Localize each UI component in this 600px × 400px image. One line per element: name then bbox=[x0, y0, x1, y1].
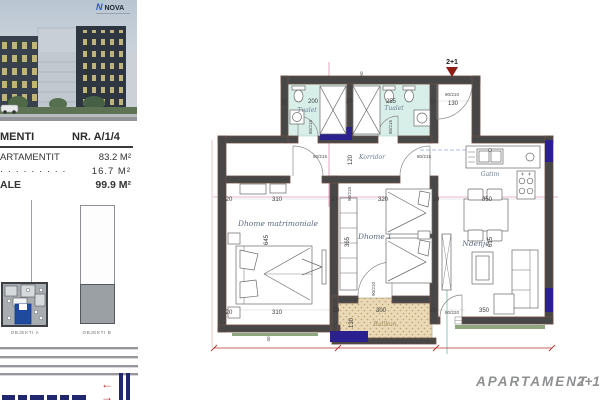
dim-label: 120 bbox=[348, 154, 354, 165]
floor-plan: 2+1 Tualet Tualet Korridor Dhome matrimo… bbox=[0, 0, 600, 400]
dim-label: 20 bbox=[333, 308, 340, 314]
dim-label: 310 bbox=[272, 197, 283, 203]
dim-label: 130 bbox=[349, 317, 355, 328]
dim-label: 80/215 bbox=[313, 154, 327, 159]
dim-label: 90/210 bbox=[371, 282, 376, 296]
room-label-korridor: Korridor bbox=[358, 154, 386, 161]
room-label-tualet-2: Tualet bbox=[384, 105, 404, 112]
dim-label: 615 bbox=[488, 236, 494, 247]
dim-label: 310 bbox=[272, 310, 283, 316]
dim-label: 80/215 bbox=[308, 120, 313, 134]
dim-label: 20 bbox=[226, 197, 233, 203]
dim-label: 365 bbox=[345, 236, 351, 247]
dim-label: 645 bbox=[264, 234, 270, 245]
room-label-gatim: Gatim bbox=[481, 171, 500, 178]
master-bed bbox=[228, 184, 326, 318]
dim-label: 20 bbox=[226, 310, 233, 316]
entry-marker-icon bbox=[446, 67, 458, 77]
room-label-master: Dhome matrimoniale bbox=[237, 219, 319, 228]
dim-label: 20 bbox=[282, 98, 288, 105]
dim-label: 200 bbox=[308, 99, 319, 105]
dim-label: 130 bbox=[448, 101, 459, 107]
dim-label: 90/215 bbox=[347, 187, 352, 201]
dim-label: 80/215 bbox=[417, 154, 431, 159]
dim-label: 50 bbox=[359, 71, 364, 77]
room-label-ballkon: Ballkon bbox=[373, 321, 397, 328]
dim-label: 10 bbox=[331, 197, 338, 203]
room-label-ndenje: Ndenje bbox=[461, 239, 490, 248]
dim-label: 10 bbox=[430, 99, 437, 105]
dim-label: 350 bbox=[479, 308, 490, 314]
red-dimension-line bbox=[211, 345, 555, 351]
dim-label: 40 bbox=[266, 336, 271, 342]
dim-label: 320 bbox=[378, 197, 389, 203]
dim-label: 350 bbox=[482, 197, 493, 203]
footer-apartment-type: 2+1 bbox=[577, 374, 600, 389]
entry-type-label: 2+1 bbox=[446, 59, 458, 66]
dim-label: 80/220 bbox=[445, 310, 459, 315]
dim-label: 80/215 bbox=[388, 120, 393, 134]
room-label-tualet-1: Tualet bbox=[297, 107, 317, 114]
dim-label: 10 bbox=[433, 197, 440, 203]
dim-label: 255 bbox=[386, 99, 397, 105]
footer-apartment-title: APARTAMENT bbox=[476, 374, 588, 389]
dim-label: 20 bbox=[430, 308, 437, 314]
dim-label: 90/210 bbox=[445, 92, 459, 97]
dim-label: 10 bbox=[346, 99, 353, 105]
brochure-page: NNOVA MENTI NR. A/1/4 ARTAMENTIT 83.2 M²… bbox=[0, 0, 600, 400]
room-label-dhome1: Dhome 1 bbox=[357, 232, 392, 241]
dim-label: 300 bbox=[376, 308, 387, 314]
